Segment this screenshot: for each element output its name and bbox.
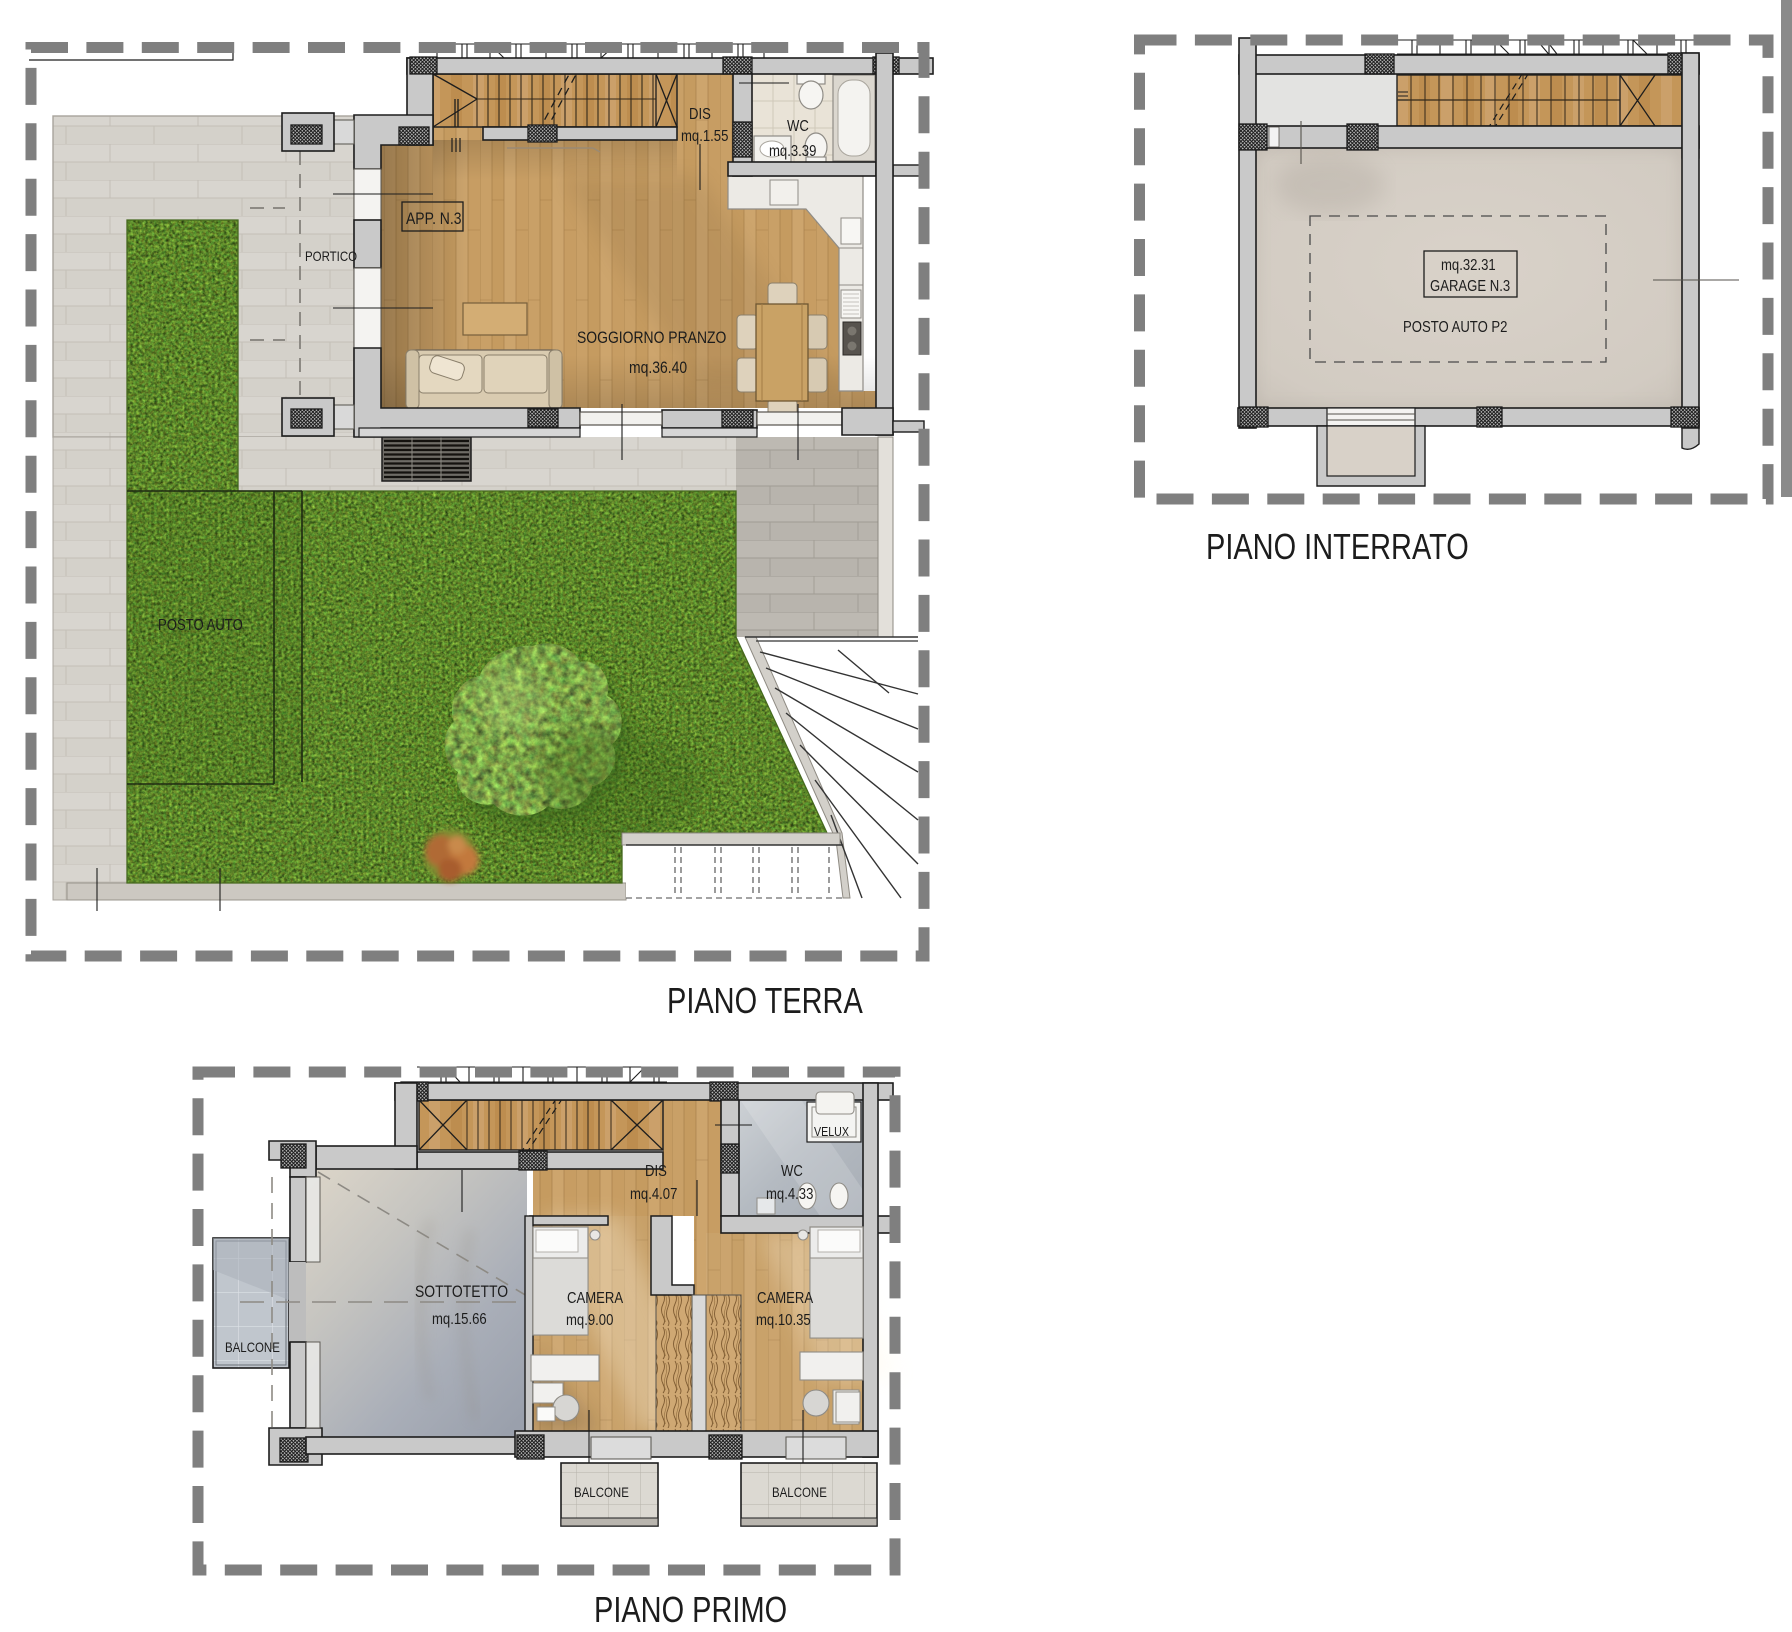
svg-text:CAMERA: CAMERA <box>757 1290 813 1307</box>
svg-text:CAMERA: CAMERA <box>567 1290 623 1307</box>
svg-text:mq.32.31: mq.32.31 <box>1441 257 1496 274</box>
svg-text:DIS: DIS <box>689 106 711 123</box>
svg-text:mq.1.55: mq.1.55 <box>681 128 728 145</box>
svg-text:PIANO TERRA: PIANO TERRA <box>667 980 863 1021</box>
svg-text:mq.15.66: mq.15.66 <box>432 1311 487 1328</box>
svg-text:GARAGE N.3: GARAGE N.3 <box>1430 278 1510 295</box>
svg-text:mq.9.00: mq.9.00 <box>566 1312 613 1329</box>
svg-text:PIANO INTERRATO: PIANO INTERRATO <box>1206 526 1469 567</box>
svg-text:SOTTOTETTO: SOTTOTETTO <box>415 1283 508 1302</box>
svg-text:mq.36.40: mq.36.40 <box>629 359 687 378</box>
svg-text:BALCONE: BALCONE <box>574 1484 629 1500</box>
svg-text:APP. N.3: APP. N.3 <box>406 210 461 229</box>
svg-text:SOGGIORNO PRANZO: SOGGIORNO PRANZO <box>577 329 726 348</box>
svg-text:VELUX: VELUX <box>814 1124 849 1139</box>
svg-text:mq.4.07: mq.4.07 <box>630 1186 677 1203</box>
svg-text:WC: WC <box>781 1163 803 1180</box>
svg-text:PORTICO: PORTICO <box>305 248 357 264</box>
svg-text:mq.4.33: mq.4.33 <box>766 1186 813 1203</box>
svg-text:mq.3.39: mq.3.39 <box>769 143 816 160</box>
svg-text:mq.10.35: mq.10.35 <box>756 1312 811 1329</box>
svg-text:BALCONE: BALCONE <box>772 1484 827 1500</box>
svg-text:PIANO PRIMO: PIANO PRIMO <box>594 1589 787 1630</box>
svg-text:POSTO AUTO P2: POSTO AUTO P2 <box>1403 319 1507 336</box>
svg-text:DIS: DIS <box>645 1163 667 1180</box>
svg-text:POSTO AUTO: POSTO AUTO <box>158 617 243 634</box>
svg-text:WC: WC <box>787 118 809 135</box>
